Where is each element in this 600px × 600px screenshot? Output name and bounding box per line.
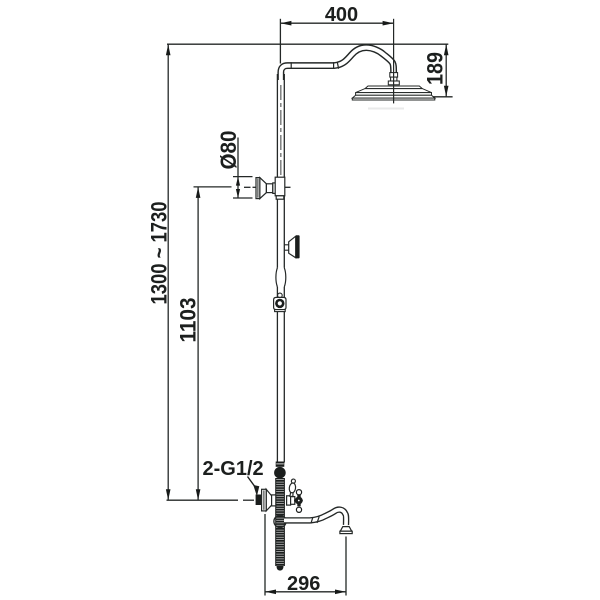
svg-text:1103: 1103 <box>176 298 201 343</box>
svg-text:189: 189 <box>423 52 448 85</box>
svg-text:2-G1/2: 2-G1/2 <box>203 458 264 480</box>
svg-text:1300 ~ 1730: 1300 ~ 1730 <box>147 202 172 305</box>
svg-text:296: 296 <box>287 573 320 595</box>
svg-text:400: 400 <box>325 4 358 26</box>
svg-text:Ø80: Ø80 <box>216 131 241 170</box>
